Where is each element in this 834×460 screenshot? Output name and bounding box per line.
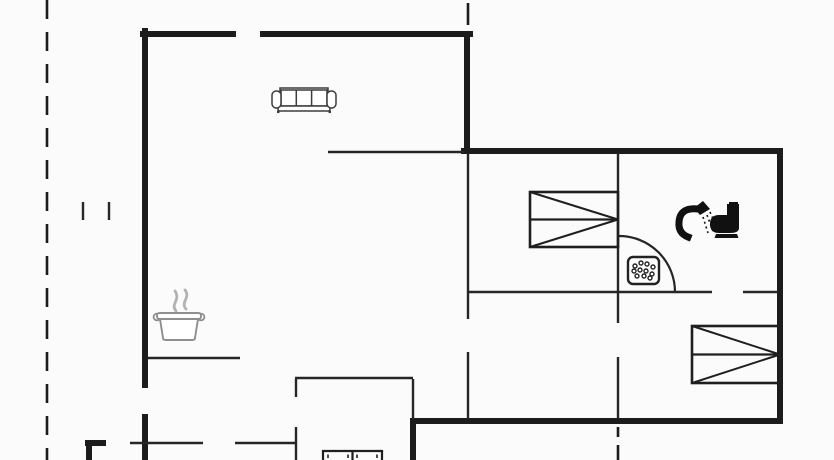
interior-walls [83, 152, 778, 460]
bed-icon-1 [530, 192, 618, 247]
bed-icon-2 [692, 326, 780, 383]
floor-plan-svg [0, 0, 834, 460]
shower-drain-icon [628, 257, 659, 284]
sofa-icon [272, 88, 336, 113]
property-boundary-lines [47, 0, 618, 460]
partial-bed-icon [323, 451, 382, 460]
floor-plan [0, 0, 834, 460]
exterior-walls [88, 31, 780, 460]
cooking-pot-icon [154, 290, 205, 340]
toilet-icon [710, 202, 739, 238]
